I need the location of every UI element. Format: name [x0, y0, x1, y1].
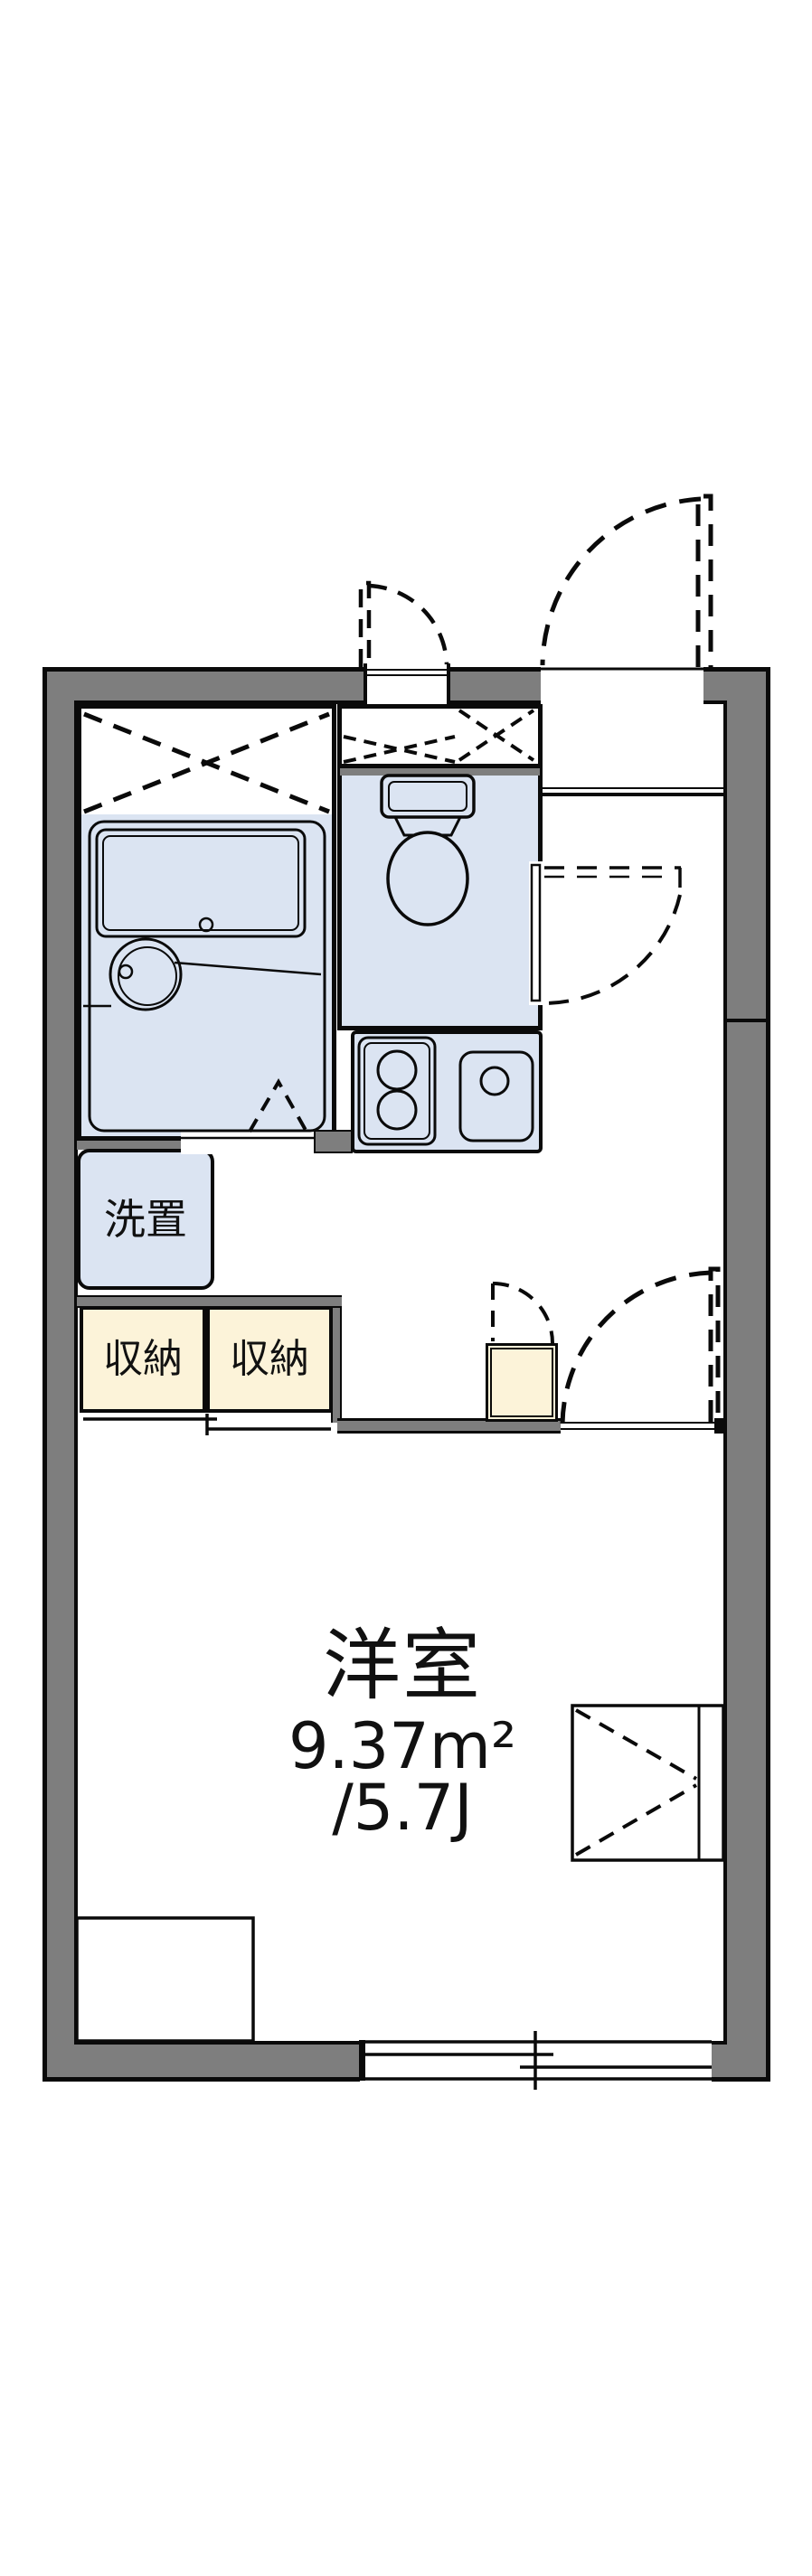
window-opening: [360, 2037, 712, 2084]
toilet-doorway: [529, 861, 545, 1005]
entrance-opening: [541, 661, 703, 707]
storage-left-label: 収納: [103, 1340, 183, 1379]
washer-space-label: 洗置: [104, 1199, 187, 1240]
washer-space: 洗置: [77, 1149, 214, 1290]
toilet-floor: [342, 776, 538, 1026]
room-area-tatami: /5.7J: [271, 1775, 533, 1840]
room-area-m2: 9.37m²: [271, 1714, 533, 1779]
storage-closet-right: 収納: [206, 1306, 333, 1413]
entrance-door-swing: [543, 496, 711, 667]
storage-right-label: 収納: [230, 1340, 309, 1379]
floorplan-page: 洗置 収納 収納 洋室 9.37m² /5.7J: [0, 0, 812, 2576]
toilet-upper-wall: [340, 768, 540, 776]
storage-closet-left: 収納: [80, 1306, 206, 1413]
bath-doorway: [181, 1132, 314, 1154]
wall-corner-bath-kitchen: [314, 1130, 353, 1153]
room-door-stub: [714, 1418, 725, 1434]
kitchen-counter: [351, 1030, 543, 1153]
water-heater-box: [486, 1343, 558, 1422]
meter-box-door-swing: [361, 583, 447, 667]
room-name: 洋室: [271, 1622, 533, 1709]
bathroom-floor: [81, 814, 332, 1136]
